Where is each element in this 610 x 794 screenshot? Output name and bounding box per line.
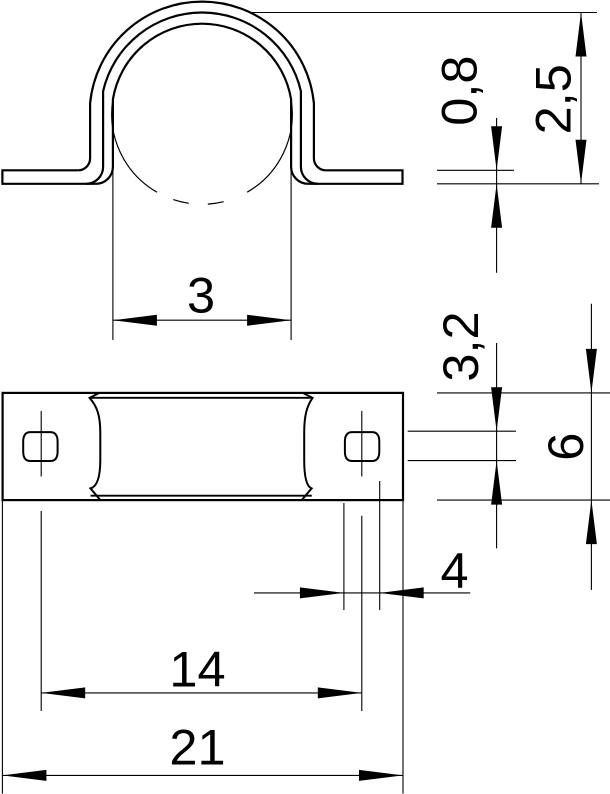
svg-text:6: 6 bbox=[537, 433, 594, 461]
svg-text:3,2: 3,2 bbox=[432, 311, 489, 381]
svg-text:3: 3 bbox=[187, 267, 215, 324]
svg-text:0,8: 0,8 bbox=[431, 55, 488, 125]
svg-text:2,5: 2,5 bbox=[525, 64, 582, 134]
svg-text:14: 14 bbox=[169, 640, 225, 697]
svg-text:4: 4 bbox=[440, 542, 468, 599]
svg-text:21: 21 bbox=[169, 718, 225, 775]
